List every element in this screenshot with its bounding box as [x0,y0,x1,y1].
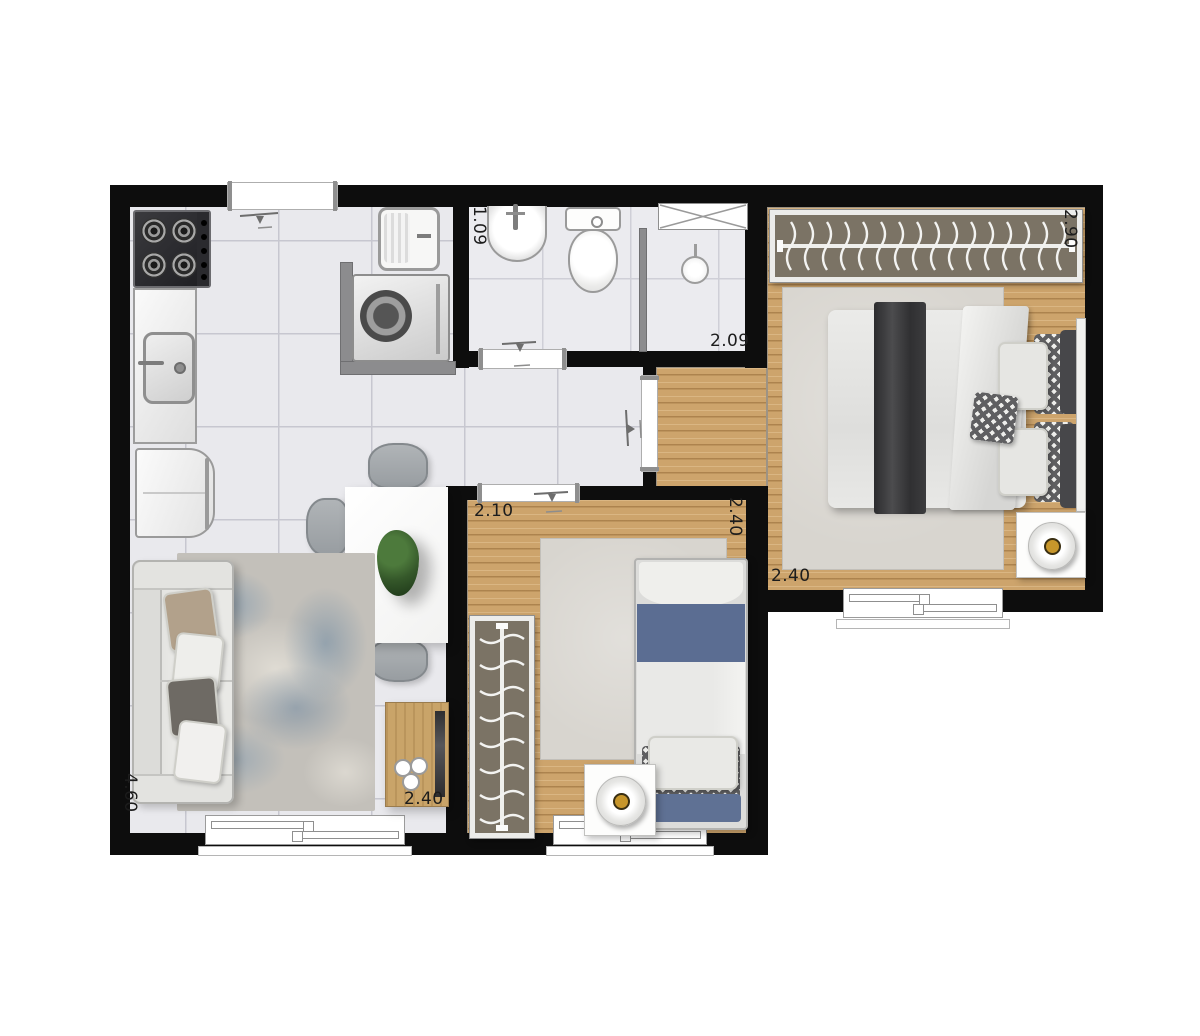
bedroom2-closet [470,616,534,838]
refrigerator [135,448,215,538]
door-pivot-bedroom2 [532,486,572,522]
bed2-blue-stripe [637,604,745,664]
bed1-throw [874,302,926,514]
laundry-faucet-icon [417,234,431,238]
kitchen-counter [133,288,197,444]
bed2-blue-footer [641,794,741,822]
bedroom1-window-sash [849,594,929,602]
toilet [565,207,621,295]
box-window-x-icon [659,204,747,229]
bedroom1-window-sash [914,604,997,612]
closet-hangers-icon [775,215,1077,277]
bedroom1-window [843,588,1003,618]
toilet-button [591,216,603,228]
living-window [205,815,405,845]
dim-living-length: 4.60 [120,773,140,812]
sofa-armrest [134,562,232,590]
dining-chair [370,640,428,682]
stove-burner [141,252,167,278]
door-pivot-entrance [238,210,284,236]
sofa-pillow [173,719,228,784]
wall-living-bedroom2 [446,486,467,855]
wall-laundry-horizontal [340,361,456,375]
bed1-accent-cushion [969,391,1019,444]
bedroom2-lamp [596,776,646,826]
dim-bedroom2-length: 2.40 [725,497,745,536]
door-pivot-bathroom [500,336,540,376]
stove-knob-strip [197,212,209,286]
bedroom1-nightstand [1016,512,1086,578]
bedroom1-closet [770,210,1082,282]
wall-left [110,185,130,855]
stove [133,210,211,288]
stove-burner [171,218,197,244]
laundry-tank-ribs [384,213,410,263]
wall-shower-partition [639,228,647,352]
dim-bathroom-width: 1.09 [469,206,489,245]
living-window-sash [211,821,313,829]
bedroom1-lamp [1028,522,1076,570]
bed2-top-sheet [639,562,743,606]
closet-hangers-icon [475,621,529,833]
toilet-bowl [568,229,618,293]
wall-right [1085,185,1103,612]
bathroom-box-window [658,203,748,230]
bedroom1-bed [828,296,1086,524]
dim-bedroom1-length: 2.90 [1060,209,1080,248]
dining-chair [368,443,428,489]
sofa [132,560,234,804]
stove-burner [141,218,167,244]
tv-icon [435,711,445,797]
kitchen-faucet-icon [138,361,164,365]
laundry-tank [378,207,440,271]
bed1-headboard [1076,318,1086,512]
kitchen-drain [174,362,186,374]
floor-plan: 1.09 2.09 2.90 2.40 2.10 2.40 4.60 2.40 [0,0,1200,1036]
kitchen-sink [143,332,195,404]
washer-door-icon [360,290,412,342]
wall-bedroom2-right [746,486,768,855]
bedroom1-window-sill [836,619,1010,629]
bathroom-faucet-icon [513,204,518,230]
refrigerator-handle [205,458,209,530]
washer-panel [436,284,440,354]
door-pivot-bedroom1 [618,408,648,452]
dining-chair [306,498,350,556]
bedroom2-nightstand [584,764,656,836]
refrigerator-divider [143,492,205,494]
washing-machine [352,274,450,362]
living-window-sash [293,831,399,839]
dim-bathroom-length: 2.09 [710,331,749,351]
bathroom-faucet-handle [506,212,525,215]
entrance-door [227,182,338,210]
floor-hall-nook [655,366,770,490]
bed2-pillow [648,736,738,790]
dim-bedroom1-width: 2.40 [771,566,810,586]
living-window-sill [198,846,412,856]
sofa-backrest [134,562,162,802]
bathroom-sink [487,206,547,262]
toilet-tank [565,207,621,231]
shower-head-icon [681,256,709,284]
stove-burner [171,252,197,278]
wall-kitchen-bath [453,185,469,368]
dim-living-width: 2.40 [404,789,443,809]
dim-bedroom2-width: 2.10 [474,501,513,521]
bedroom2-window-sill [546,846,714,856]
